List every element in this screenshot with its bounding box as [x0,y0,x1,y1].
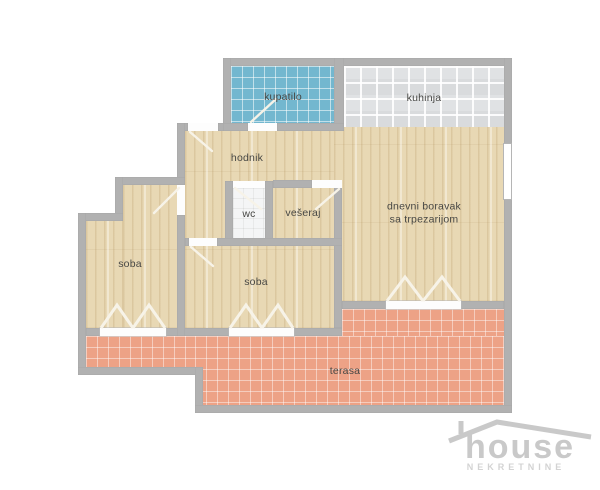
logo-house: house NEKRETNINE [440,415,600,485]
wall [461,301,504,309]
left-room-floor [123,185,177,328]
wall [177,123,185,185]
room-label-kupatilo: kupatilo [264,91,302,104]
floor-plan: kupatilo kuhinja hodnik wc vešeraj dnevn… [0,0,600,490]
wall [273,180,312,188]
left-room-terrace-door [100,328,166,336]
logo-subtitle: NEKRETNINE [440,462,592,472]
living-room-terrace-door [386,301,461,309]
wall [166,328,229,336]
room-label-wc: wc [242,208,255,221]
room-label-soba-left: soba [118,258,142,271]
wall [223,58,512,66]
wall [277,123,344,131]
wc-door [233,181,265,188]
left-room-door [177,186,185,215]
terrace-floor-upper [342,309,504,336]
wall [334,58,344,127]
wall [334,180,342,328]
left-room-floor-notch [86,221,123,328]
wall [265,181,273,246]
wall [115,177,185,185]
wall [223,58,231,131]
room-label-kuhinja: kuhinja [407,92,442,105]
room-label-hodnik: hodnik [231,152,263,165]
middle-room-terrace-door [229,328,294,336]
terrace-floor-left [86,336,195,367]
room-label-soba-middle: soba [244,276,268,289]
wall [217,238,342,246]
laundry-door [312,180,342,188]
bathroom-door [248,123,277,131]
room-label-dnevni-boravak: dnevni boravak sa trpezarijom [387,201,461,226]
room-label-terasa: terasa [330,365,360,378]
entrance-door [188,123,218,131]
wall [342,301,386,309]
wall [86,328,100,336]
wall [225,181,233,246]
wall [78,367,203,375]
wall [195,405,512,413]
living-room-window [503,143,512,200]
middle-room-door [189,238,217,246]
wall [294,328,342,336]
wall [177,215,185,336]
wall [78,213,86,375]
room-label-dnevni-line2: sa trpezarijom [390,213,459,225]
wall [504,58,512,413]
wall [223,123,248,131]
room-label-dnevni-line1: dnevni boravak [387,201,461,213]
room-label-veseraj: vešeraj [285,207,320,220]
